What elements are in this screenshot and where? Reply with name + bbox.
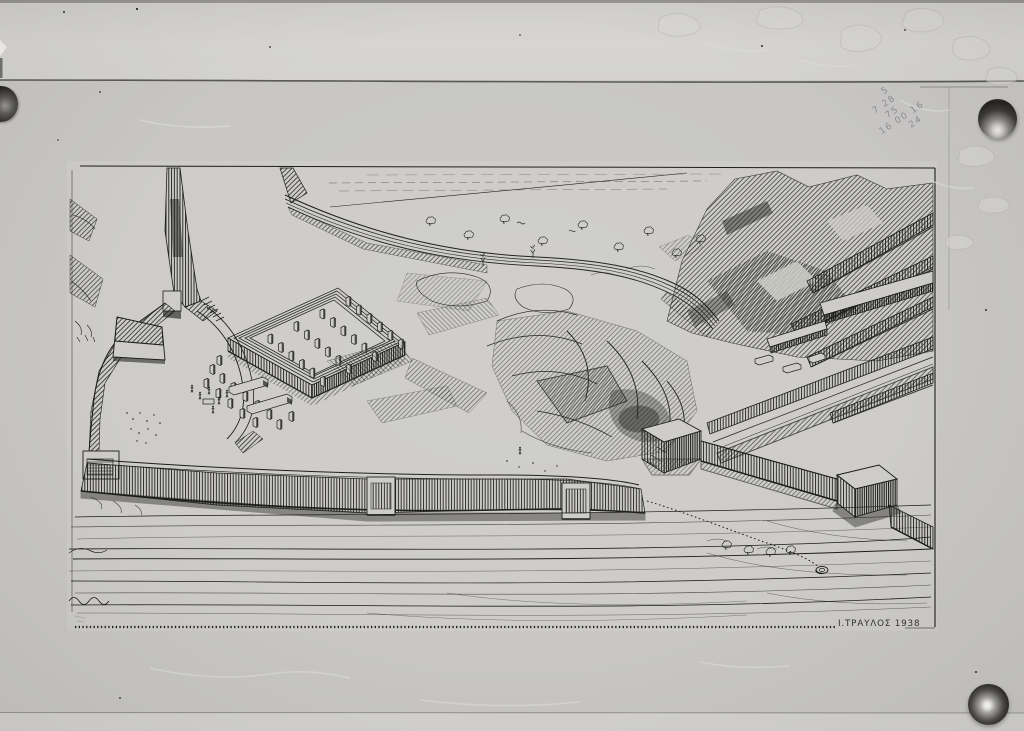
thumbtack-pin-top-right — [978, 99, 1017, 139]
lower-print-edge — [0, 713, 1024, 731]
thumbtack-pin-bottom-right — [968, 684, 1009, 725]
thumbtack-pin-top-left — [0, 86, 18, 122]
drawing-sheet: Ι.ΤΡΑΥΛΟΣ 1938 — [67, 161, 937, 631]
signature-text: Ι.ΤΡΑΥΛΟΣ 1938 — [838, 619, 920, 629]
site-drawing: Ι.ΤΡΑΥΛΟΣ 1938 — [67, 161, 937, 631]
overlapping-print-top-edge — [0, 0, 1024, 80]
photo-top-edge — [0, 0, 1024, 3]
photo-board: Ι.ΤΡΑΥΛΟΣ 1938 — [0, 0, 1024, 731]
